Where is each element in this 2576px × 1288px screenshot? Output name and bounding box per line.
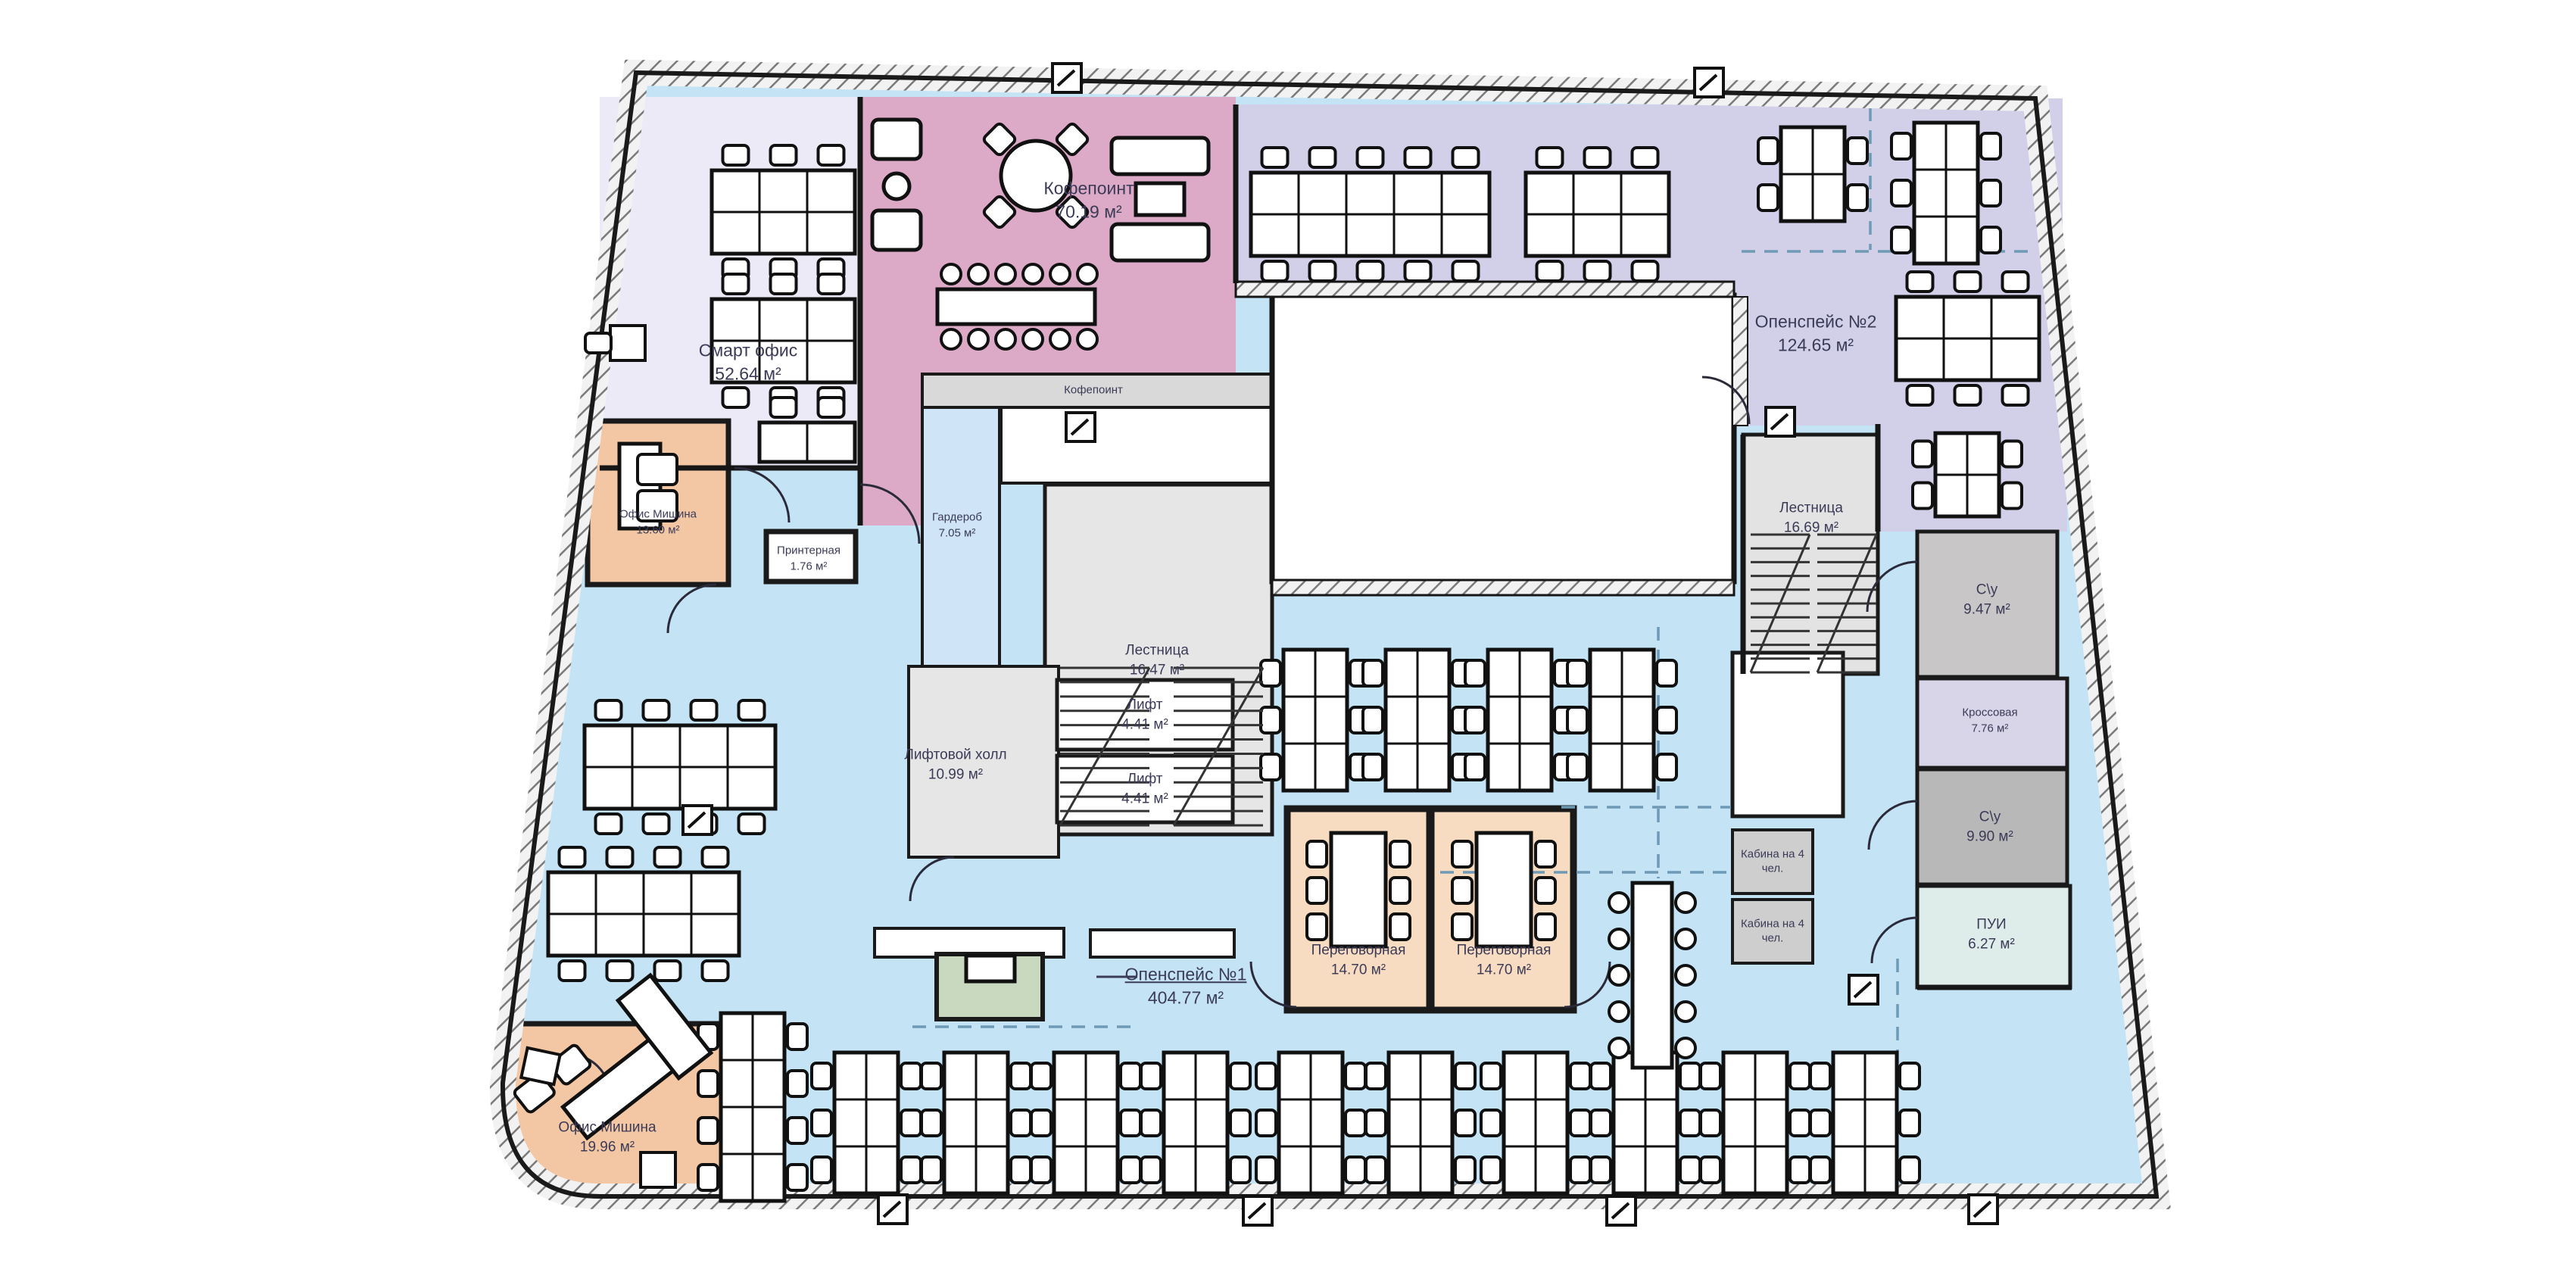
floor-plan: Смарт офис52.64 м² Офис Мишина13.60 м² К… — [0, 0, 2576, 1288]
furniture-layer — [0, 0, 2576, 1288]
